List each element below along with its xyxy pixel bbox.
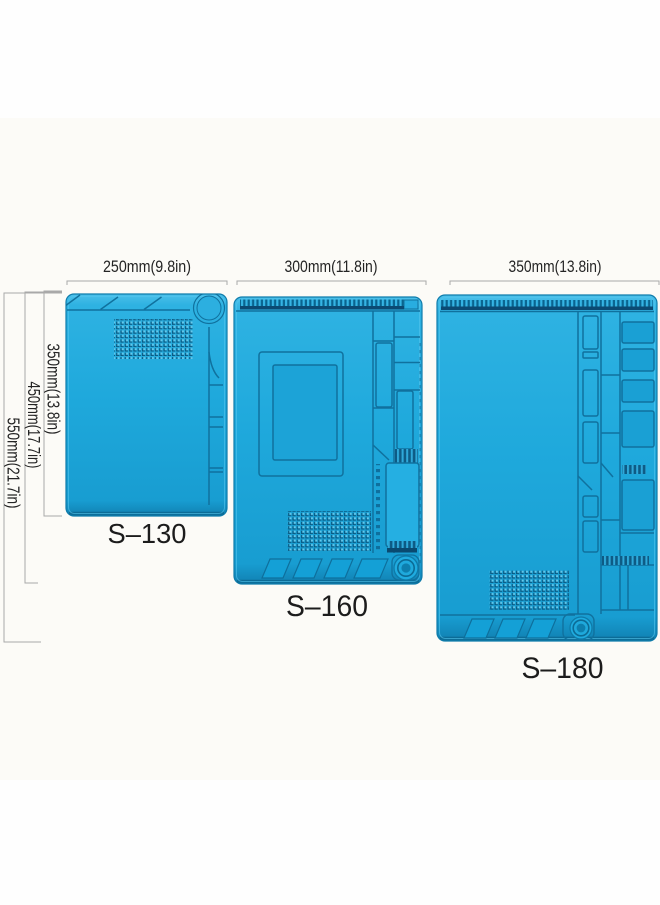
svg-text:S–180: S–180: [522, 652, 604, 685]
svg-text:300mm(11.8in): 300mm(11.8in): [285, 258, 378, 276]
svg-text:250mm(9.8in): 250mm(9.8in): [103, 258, 191, 276]
svg-text:450mm(17.7in): 450mm(17.7in): [24, 382, 44, 469]
svg-text:S–130: S–130: [108, 518, 187, 549]
svg-text:S–160: S–160: [286, 590, 368, 623]
svg-text:350mm(13.8in): 350mm(13.8in): [44, 344, 64, 435]
svg-text:550mm(21.7in): 550mm(21.7in): [4, 418, 24, 509]
svg-text:350mm(13.8in): 350mm(13.8in): [509, 258, 602, 276]
